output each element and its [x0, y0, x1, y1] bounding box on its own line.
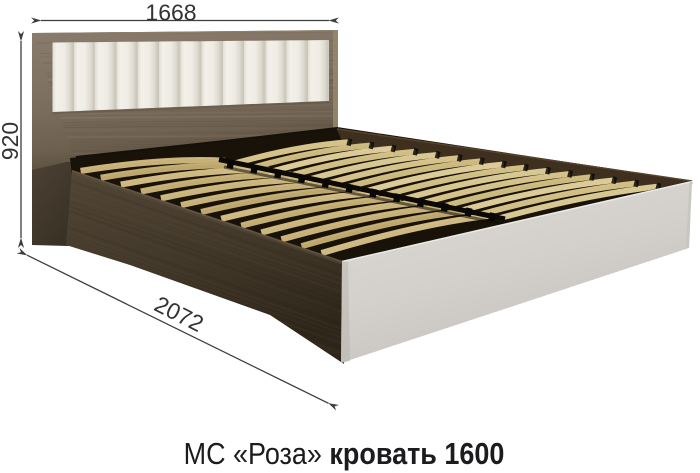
svg-text:1668: 1668 — [145, 0, 196, 26]
svg-text:920: 920 — [0, 122, 23, 160]
